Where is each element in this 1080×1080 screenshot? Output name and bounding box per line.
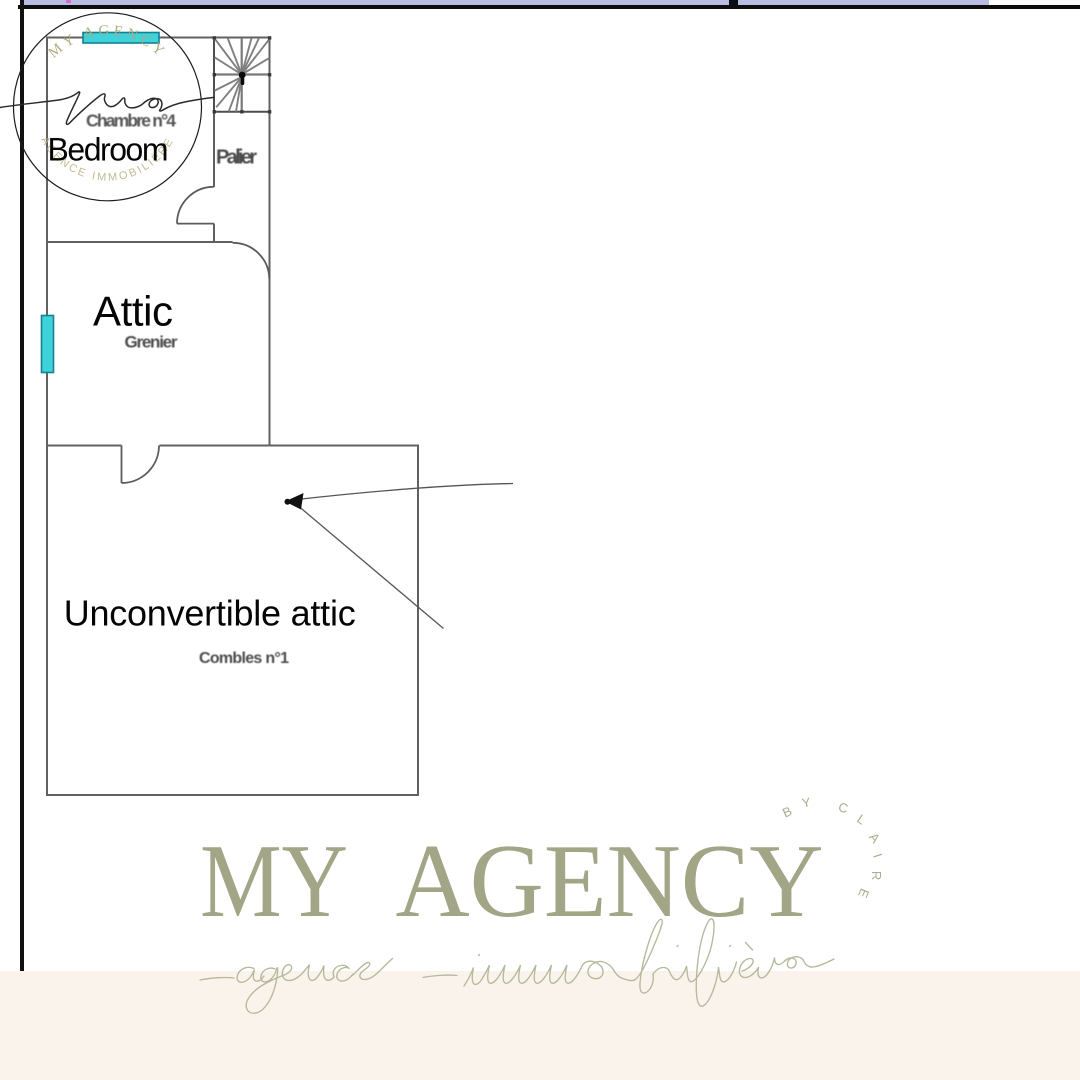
svg-text:Combles n°1: Combles n°1 [199, 650, 289, 667]
svg-text:MY: MY [200, 822, 348, 939]
svg-text:Y: Y [801, 794, 812, 810]
svg-text:R: R [869, 871, 884, 880]
svg-text:I: I [870, 852, 885, 860]
svg-text:Unconvertible attic: Unconvertible attic [64, 593, 356, 634]
svg-text:A: A [866, 830, 883, 846]
svg-text:C: C [837, 799, 850, 816]
svg-text:Grenier: Grenier [125, 333, 178, 352]
svg-text:AGENCY: AGENCY [396, 822, 824, 939]
svg-text:Bedroom: Bedroom [48, 132, 169, 168]
svg-text:L: L [854, 811, 868, 827]
svg-text:E: E [855, 886, 872, 900]
svg-text:Attic: Attic [93, 288, 173, 335]
svg-text:Palier: Palier [216, 147, 257, 169]
svg-text:B: B [780, 803, 794, 820]
svg-text:Chambre n°4: Chambre n°4 [86, 111, 176, 131]
